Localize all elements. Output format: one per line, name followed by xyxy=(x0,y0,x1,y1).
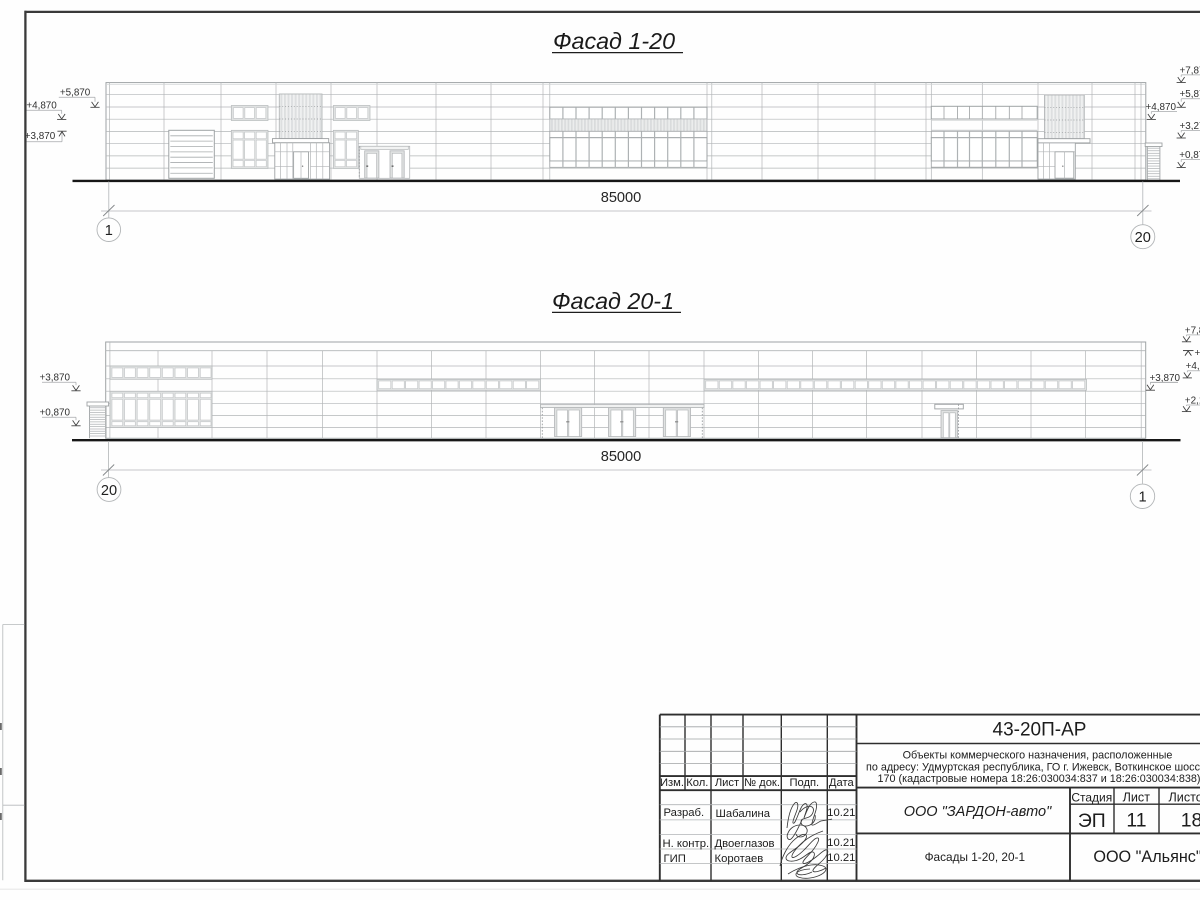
svg-text:№ док.: № док. xyxy=(744,777,780,789)
svg-text:+7,470: +7,470 xyxy=(1195,348,1200,359)
svg-text:Лист: Лист xyxy=(715,777,739,789)
svg-text:по адресу: Удмуртская республи: по адресу: Удмуртская республика, ГО г. … xyxy=(866,761,1200,773)
svg-text:Изм.: Изм. xyxy=(660,777,684,789)
svg-text:1: 1 xyxy=(105,223,113,239)
svg-text:18: 18 xyxy=(1181,809,1200,831)
svg-text:Шабалина: Шабалина xyxy=(716,808,771,820)
svg-text:Разраб.: Разраб. xyxy=(664,807,705,819)
svg-text:ООО "ЗАРДОН-авто": ООО "ЗАРДОН-авто" xyxy=(904,804,1052,820)
svg-text:ООО "Альянс": ООО "Альянс" xyxy=(1093,848,1200,866)
svg-text:20: 20 xyxy=(1135,230,1151,246)
svg-text:Двоеглазов: Двоеглазов xyxy=(715,838,775,850)
svg-text:Фасад 20-1: Фасад 20-1 xyxy=(552,288,674,314)
svg-text:10.21: 10.21 xyxy=(827,807,855,819)
svg-text:85000: 85000 xyxy=(601,190,642,206)
svg-text:10.21: 10.21 xyxy=(827,852,855,864)
svg-text:Кол.: Кол. xyxy=(686,777,708,789)
svg-text:170 (кадастровые номера 18:26:: 170 (кадастровые номера 18:26:030034:837… xyxy=(878,773,1200,785)
svg-text:ГИП: ГИП xyxy=(664,853,686,865)
svg-text:Дата: Дата xyxy=(829,777,855,789)
svg-text:43-20П-АР: 43-20П-АР xyxy=(993,720,1087,741)
svg-text:+3,870: +3,870 xyxy=(25,131,56,142)
svg-text:Коротаев: Коротаев xyxy=(715,853,764,865)
svg-text:+4,870: +4,870 xyxy=(26,100,57,111)
svg-text:Фасады 1-20, 20-1: Фасады 1-20, 20-1 xyxy=(925,850,1025,864)
svg-text:Н. контр.: Н. контр. xyxy=(663,838,710,850)
svg-text:85000: 85000 xyxy=(601,449,642,465)
svg-text:20: 20 xyxy=(101,483,117,499)
svg-text:Стадия: Стадия xyxy=(1071,791,1112,805)
svg-text:Объекты коммерческого назначен: Объекты коммерческого назначения, распол… xyxy=(903,749,1173,761)
svg-text:Подп.: Подп. xyxy=(789,777,819,789)
svg-text:+5,870: +5,870 xyxy=(60,87,91,98)
svg-text:1: 1 xyxy=(1138,490,1146,506)
svg-text:Листов: Листов xyxy=(1169,790,1200,804)
svg-text:11: 11 xyxy=(1126,809,1146,831)
svg-text:ЭП: ЭП xyxy=(1078,810,1106,832)
svg-text:Фасад 1-20: Фасад 1-20 xyxy=(553,28,675,54)
svg-text:Лист: Лист xyxy=(1123,790,1151,804)
svg-text:10.21: 10.21 xyxy=(827,837,855,849)
